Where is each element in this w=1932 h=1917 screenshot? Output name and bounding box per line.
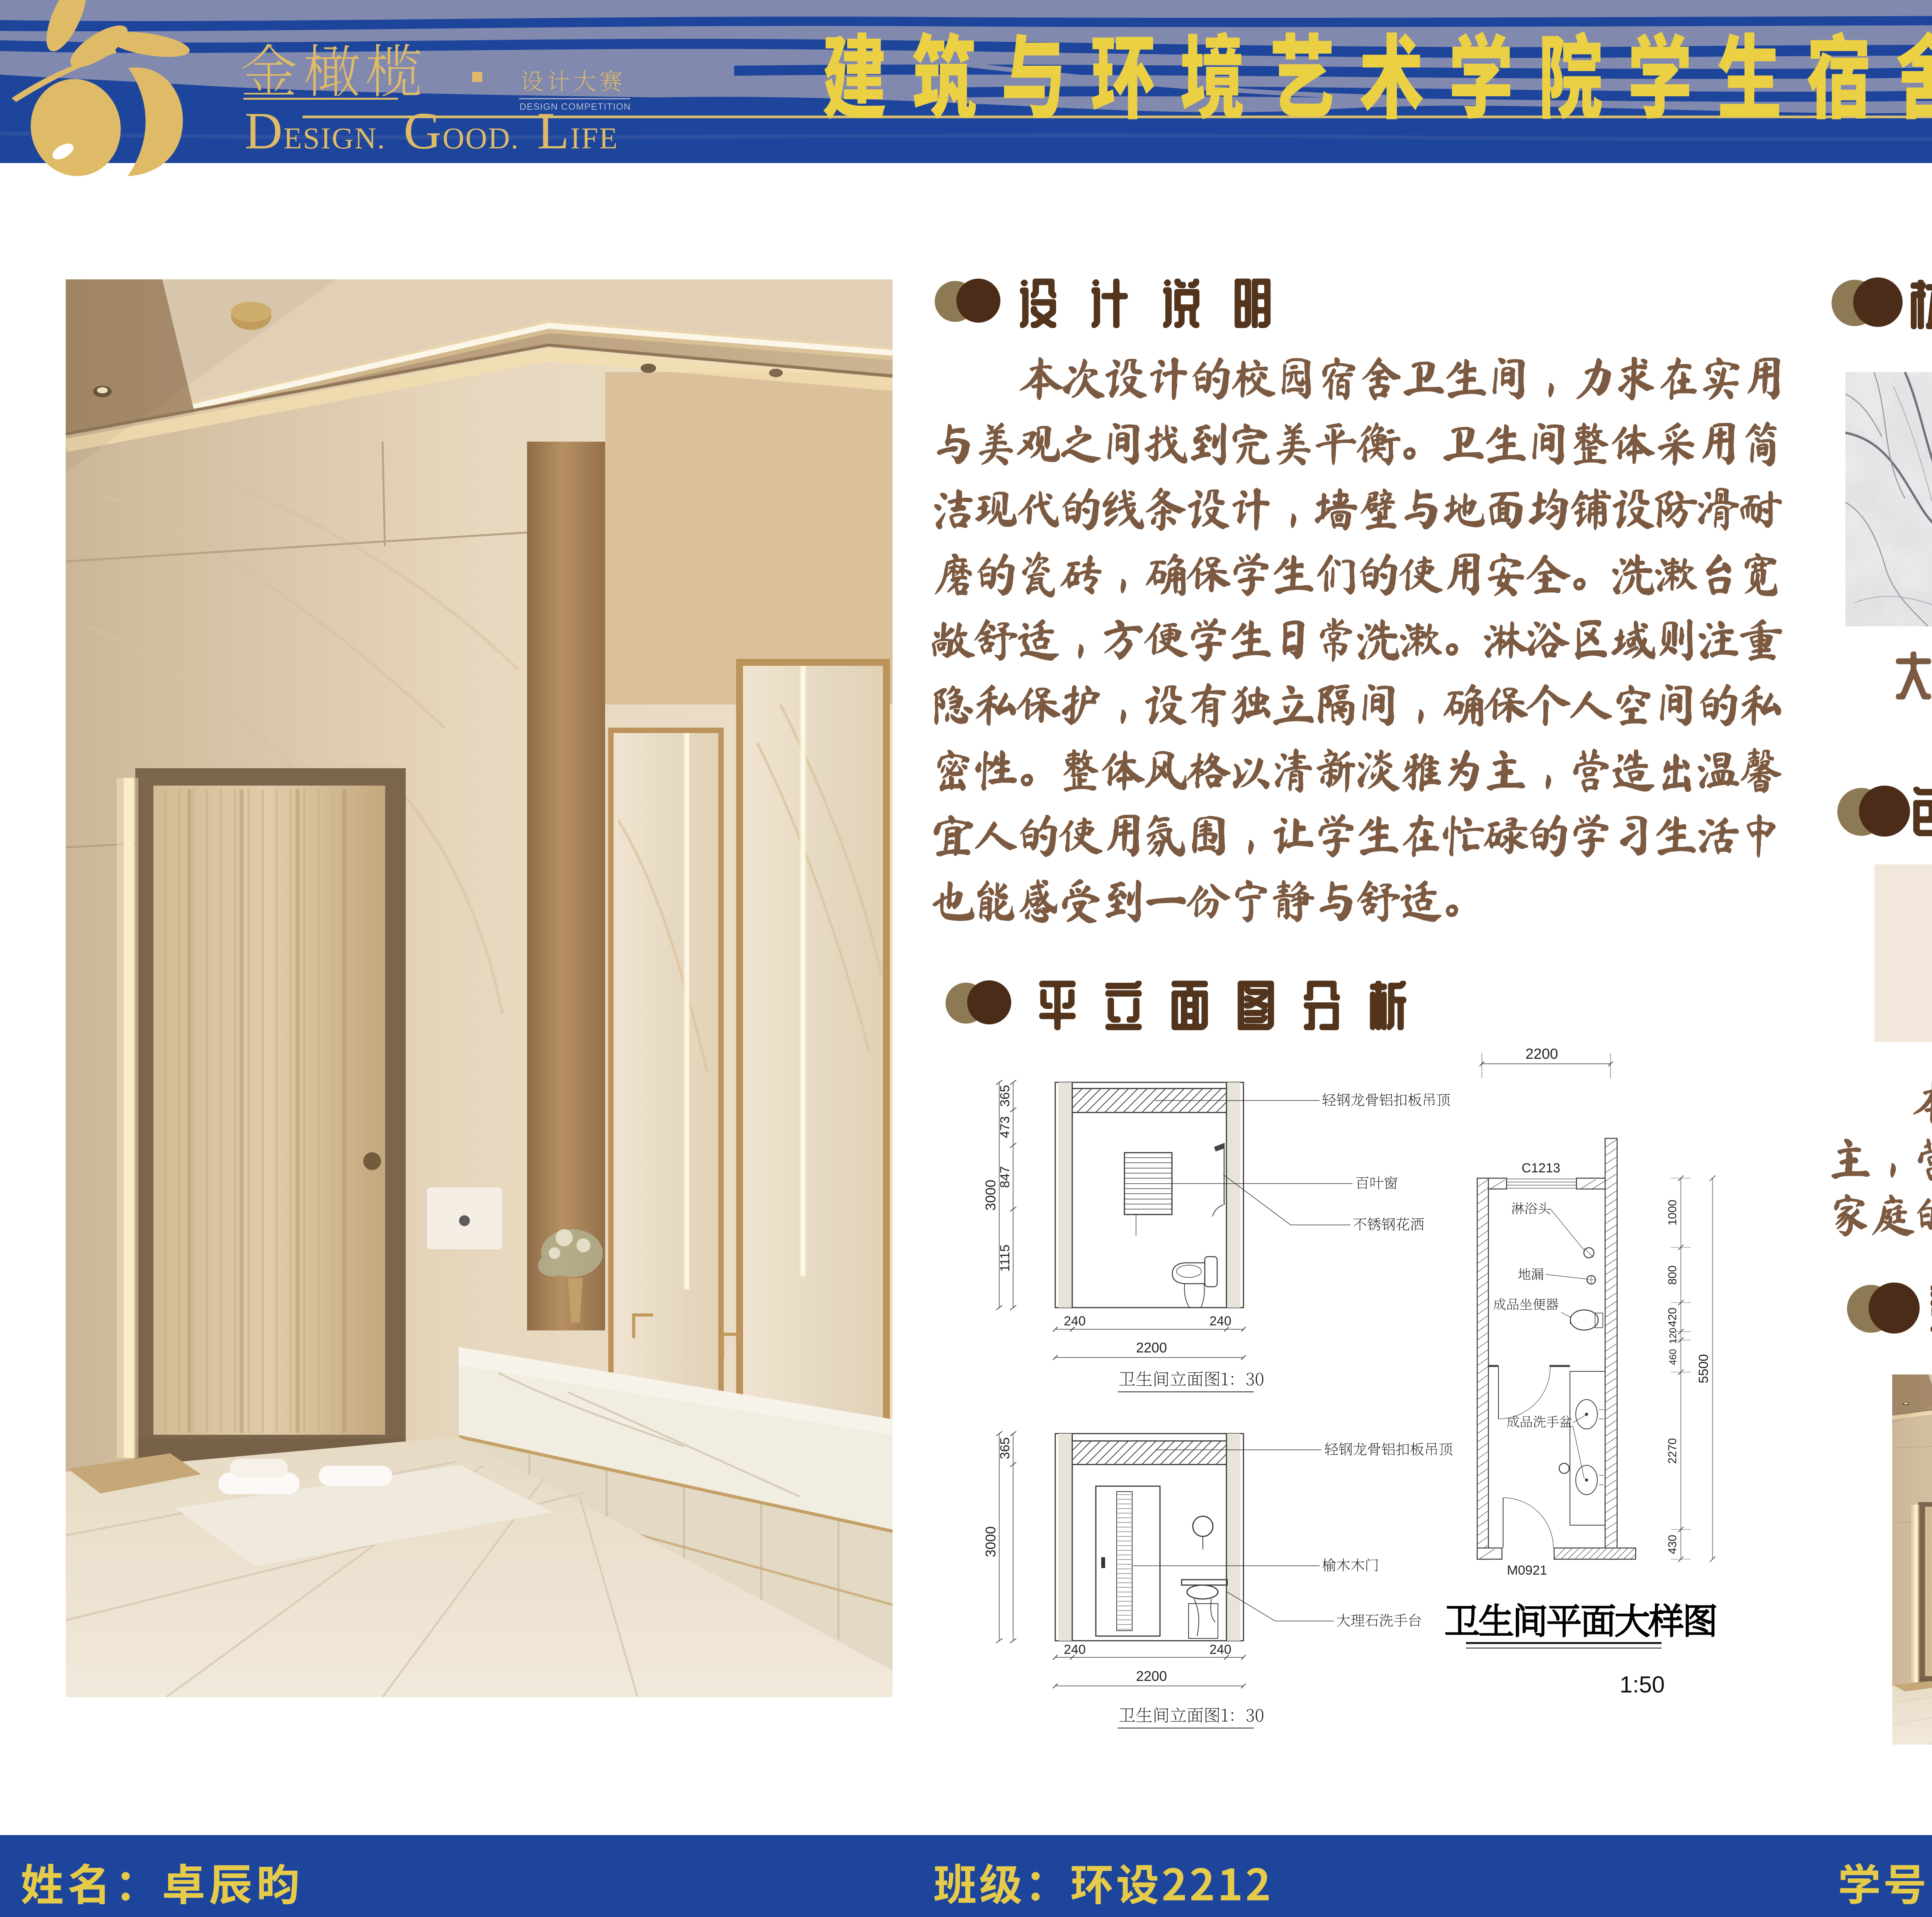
svg-text:C1213: C1213: [1522, 1161, 1560, 1175]
svg-text:120: 120: [1668, 1328, 1679, 1344]
svg-text:1115: 1115: [998, 1245, 1012, 1272]
svg-text:420: 420: [1666, 1308, 1679, 1327]
svg-text:2200: 2200: [1526, 1046, 1558, 1062]
svg-text:3000: 3000: [983, 1526, 998, 1557]
svg-text:365: 365: [998, 1085, 1012, 1107]
svg-text:473: 473: [998, 1116, 1012, 1138]
svg-text:240: 240: [1064, 1642, 1086, 1657]
svg-text:240: 240: [1209, 1642, 1231, 1657]
svg-text:2270: 2270: [1666, 1438, 1679, 1464]
svg-text:365: 365: [998, 1437, 1012, 1459]
svg-text:1:50: 1:50: [1620, 1672, 1665, 1698]
svg-text:1000: 1000: [1666, 1200, 1679, 1226]
svg-text:M0921: M0921: [1507, 1563, 1547, 1578]
svg-text:DESIGN COMPETITION: DESIGN COMPETITION: [520, 102, 631, 112]
svg-text:5500: 5500: [1696, 1354, 1711, 1383]
svg-text:240: 240: [1064, 1314, 1086, 1328]
svg-text:800: 800: [1666, 1266, 1679, 1285]
svg-text:2200: 2200: [1136, 1668, 1167, 1684]
svg-text:460: 460: [1668, 1349, 1679, 1365]
svg-text:2200: 2200: [1136, 1340, 1167, 1356]
svg-text:430: 430: [1666, 1535, 1679, 1554]
svg-text:240: 240: [1209, 1314, 1231, 1328]
svg-text:3000: 3000: [983, 1180, 998, 1211]
svg-text:847: 847: [998, 1166, 1012, 1188]
